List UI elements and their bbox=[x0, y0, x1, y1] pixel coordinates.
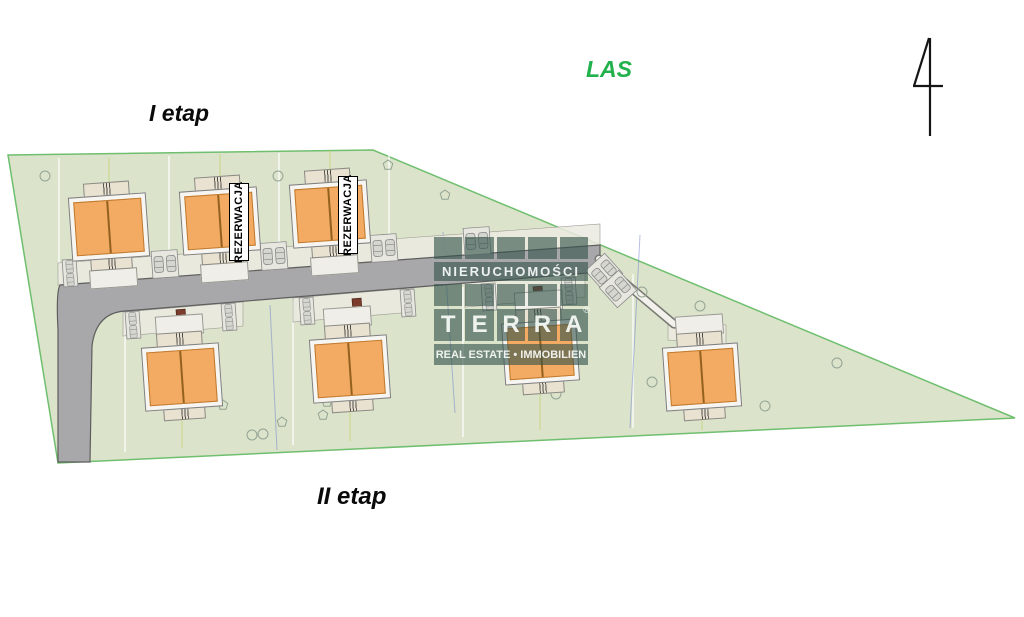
watermark-square-row bbox=[434, 284, 588, 306]
annex-divider bbox=[181, 409, 189, 419]
annex-divider bbox=[349, 401, 357, 411]
annex-divider bbox=[539, 383, 547, 393]
registered-trademark-icon: ® bbox=[583, 305, 590, 315]
annex-divider bbox=[329, 246, 337, 256]
watermark-top-line: NIERUCHOMOŚCI bbox=[434, 262, 588, 281]
house-frame bbox=[662, 342, 742, 411]
annex-divider bbox=[175, 333, 183, 345]
house-divider bbox=[327, 188, 333, 240]
terra-watermark: NIERUCHOMOŚCI T E R R A ® REAL ESTATE • … bbox=[434, 237, 588, 367]
house-1 bbox=[68, 192, 150, 261]
annex-divider bbox=[102, 183, 110, 195]
watermark-square-row bbox=[434, 237, 588, 259]
house-3 bbox=[289, 179, 371, 248]
house-body bbox=[667, 348, 737, 406]
north-arrow-icon bbox=[898, 30, 958, 145]
stage-2-label: II etap bbox=[317, 483, 386, 511]
forest-label: LAS bbox=[586, 56, 632, 83]
watermark-bottom-line: REAL ESTATE • IMMOBILIEN bbox=[434, 344, 588, 365]
house-divider bbox=[217, 195, 223, 247]
house-body bbox=[146, 348, 218, 407]
house-divider bbox=[106, 201, 112, 253]
annex-divider bbox=[695, 333, 703, 345]
annex-divider bbox=[213, 177, 221, 189]
house-divider bbox=[179, 351, 185, 403]
house-5 bbox=[309, 334, 391, 403]
house-divider bbox=[347, 343, 353, 395]
house-4 bbox=[141, 342, 223, 411]
annex-divider bbox=[219, 253, 227, 263]
reservation-label-house-3: REZERWACJA bbox=[338, 176, 358, 254]
reservation-label-house-2: REZERWACJA bbox=[229, 183, 249, 261]
watermark-brand-row: T E R R A bbox=[434, 309, 588, 341]
annex-divider bbox=[108, 259, 116, 269]
house-frame bbox=[289, 179, 371, 248]
house-7 bbox=[662, 342, 742, 411]
stage-1-label: I etap bbox=[149, 100, 209, 127]
house-divider bbox=[699, 351, 705, 403]
annex-divider bbox=[701, 409, 709, 419]
site-plan-canvas: REZERWACJA REZERWACJA NIERUCHOMOŚCI T E … bbox=[0, 0, 1024, 617]
house-frame bbox=[309, 334, 391, 403]
house-frame bbox=[68, 192, 150, 261]
house-body bbox=[73, 198, 145, 257]
house-body bbox=[314, 340, 386, 399]
house-frame bbox=[141, 342, 223, 411]
annex-divider bbox=[323, 170, 331, 182]
annex-divider bbox=[343, 325, 351, 337]
